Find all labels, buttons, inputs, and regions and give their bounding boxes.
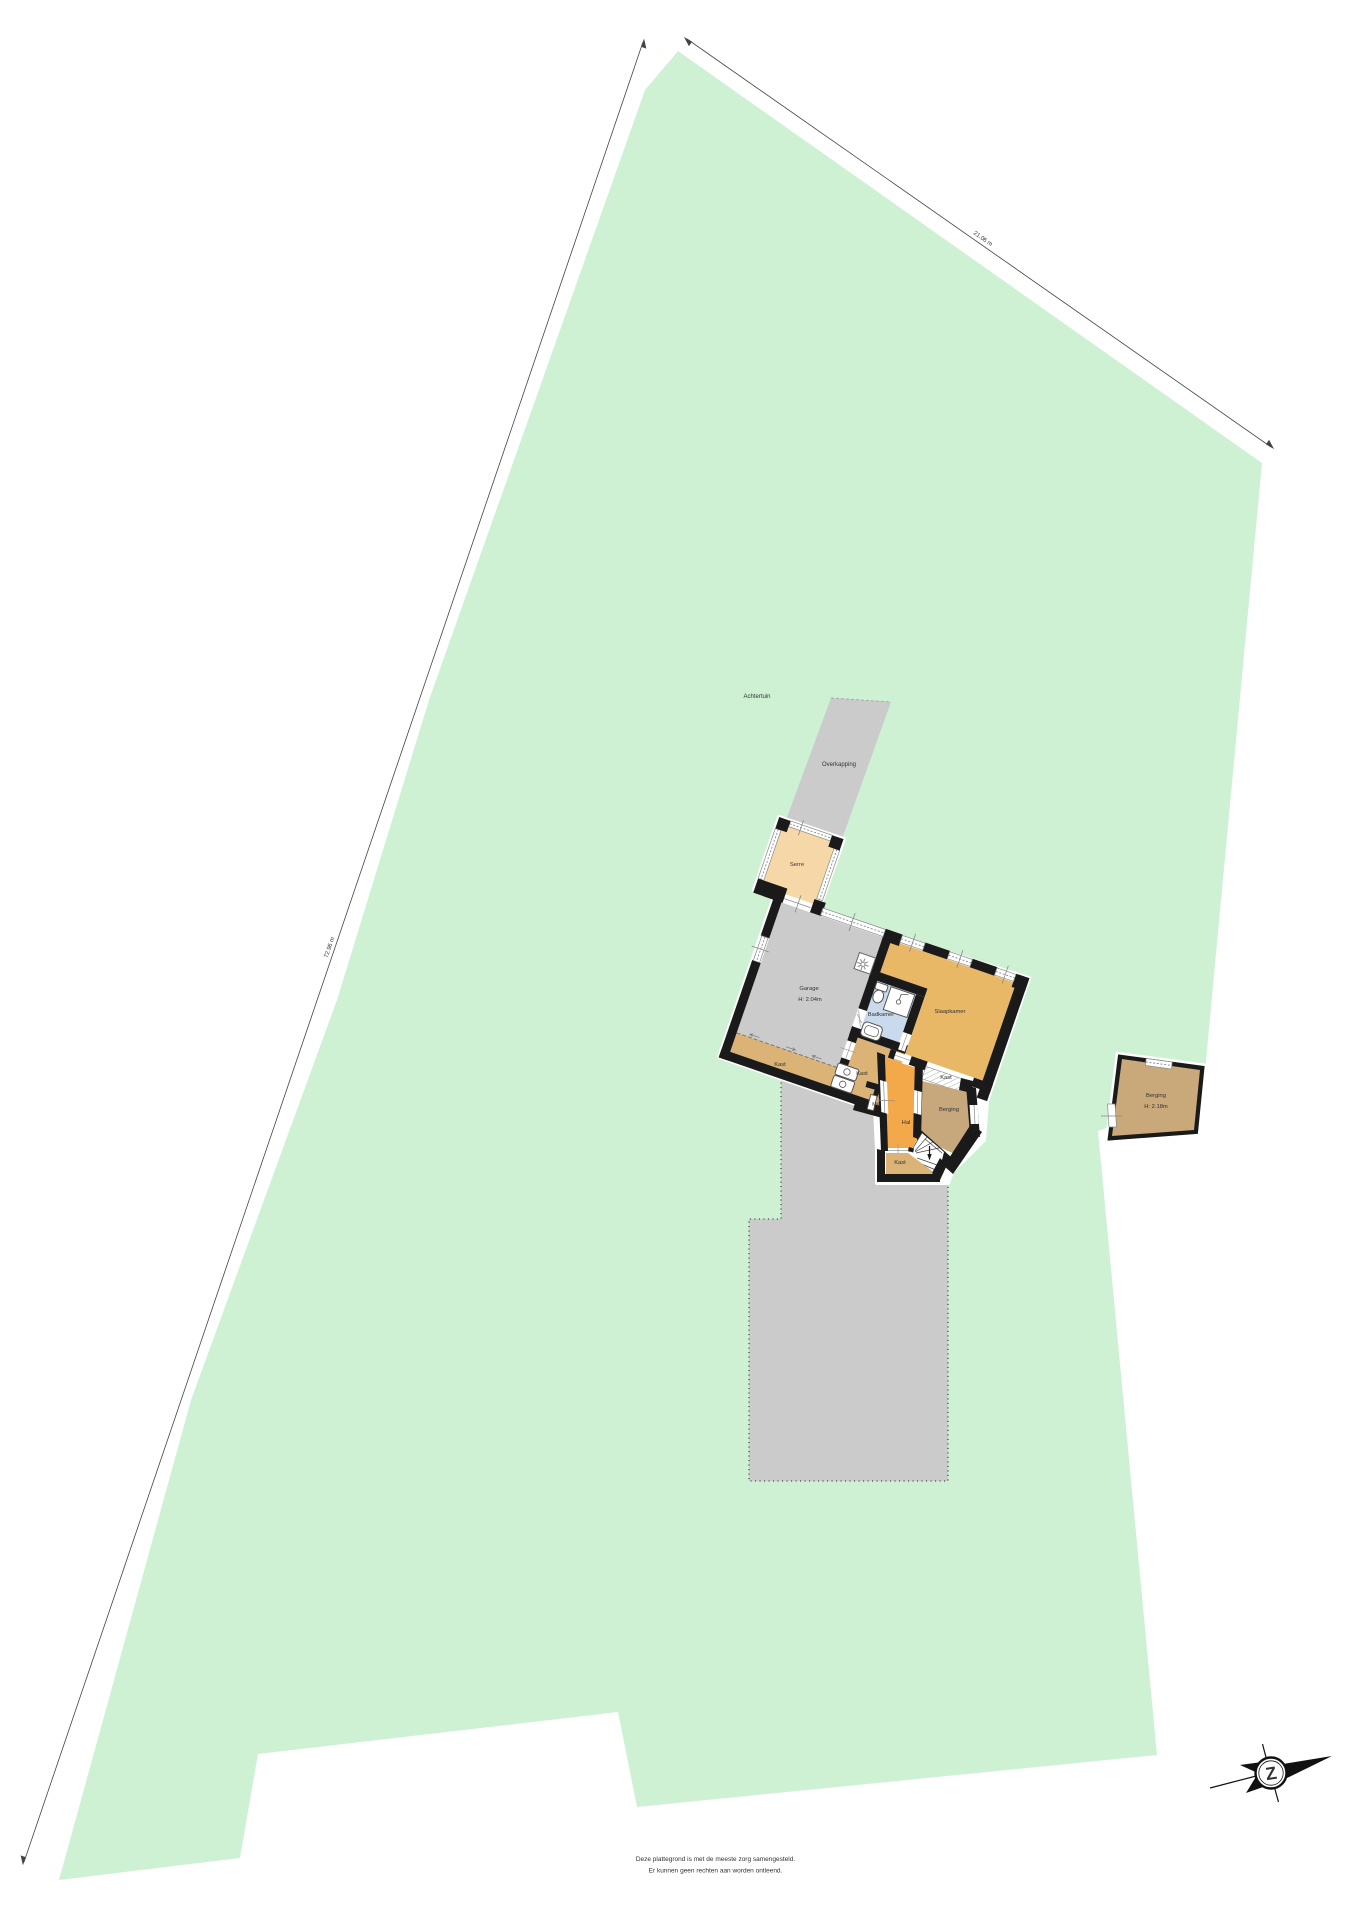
svg-text:H: 2.04m: H: 2.04m	[798, 997, 822, 1003]
svg-text:Hal: Hal	[902, 1120, 911, 1126]
svg-text:Kast: Kast	[894, 1160, 906, 1166]
svg-text:MK: MK	[872, 1102, 880, 1108]
svg-text:Er kunnen geen rechten aan wor: Er kunnen geen rechten aan worden ontlee…	[649, 1868, 783, 1875]
svg-text:Overkapping: Overkapping	[822, 762, 856, 768]
svg-text:Deze plattegrond is met de mee: Deze plattegrond is met de meeste zorg s…	[636, 1856, 796, 1863]
svg-text:Kast: Kast	[774, 1062, 786, 1068]
svg-text:H: 2.18m: H: 2.18m	[1144, 1104, 1168, 1110]
svg-text:Badkamer: Badkamer	[868, 1012, 894, 1018]
svg-text:Achtertuin: Achtertuin	[743, 694, 770, 700]
svg-text:Garage: Garage	[799, 986, 818, 992]
svg-text:Berging: Berging	[939, 1107, 959, 1113]
svg-text:Kast: Kast	[940, 1075, 952, 1081]
svg-text:Kast: Kast	[856, 1071, 868, 1077]
svg-text:Serre: Serre	[790, 862, 804, 868]
svg-text:Slaapkamer: Slaapkamer	[935, 1009, 966, 1015]
svg-text:Berging: Berging	[1146, 1093, 1166, 1099]
